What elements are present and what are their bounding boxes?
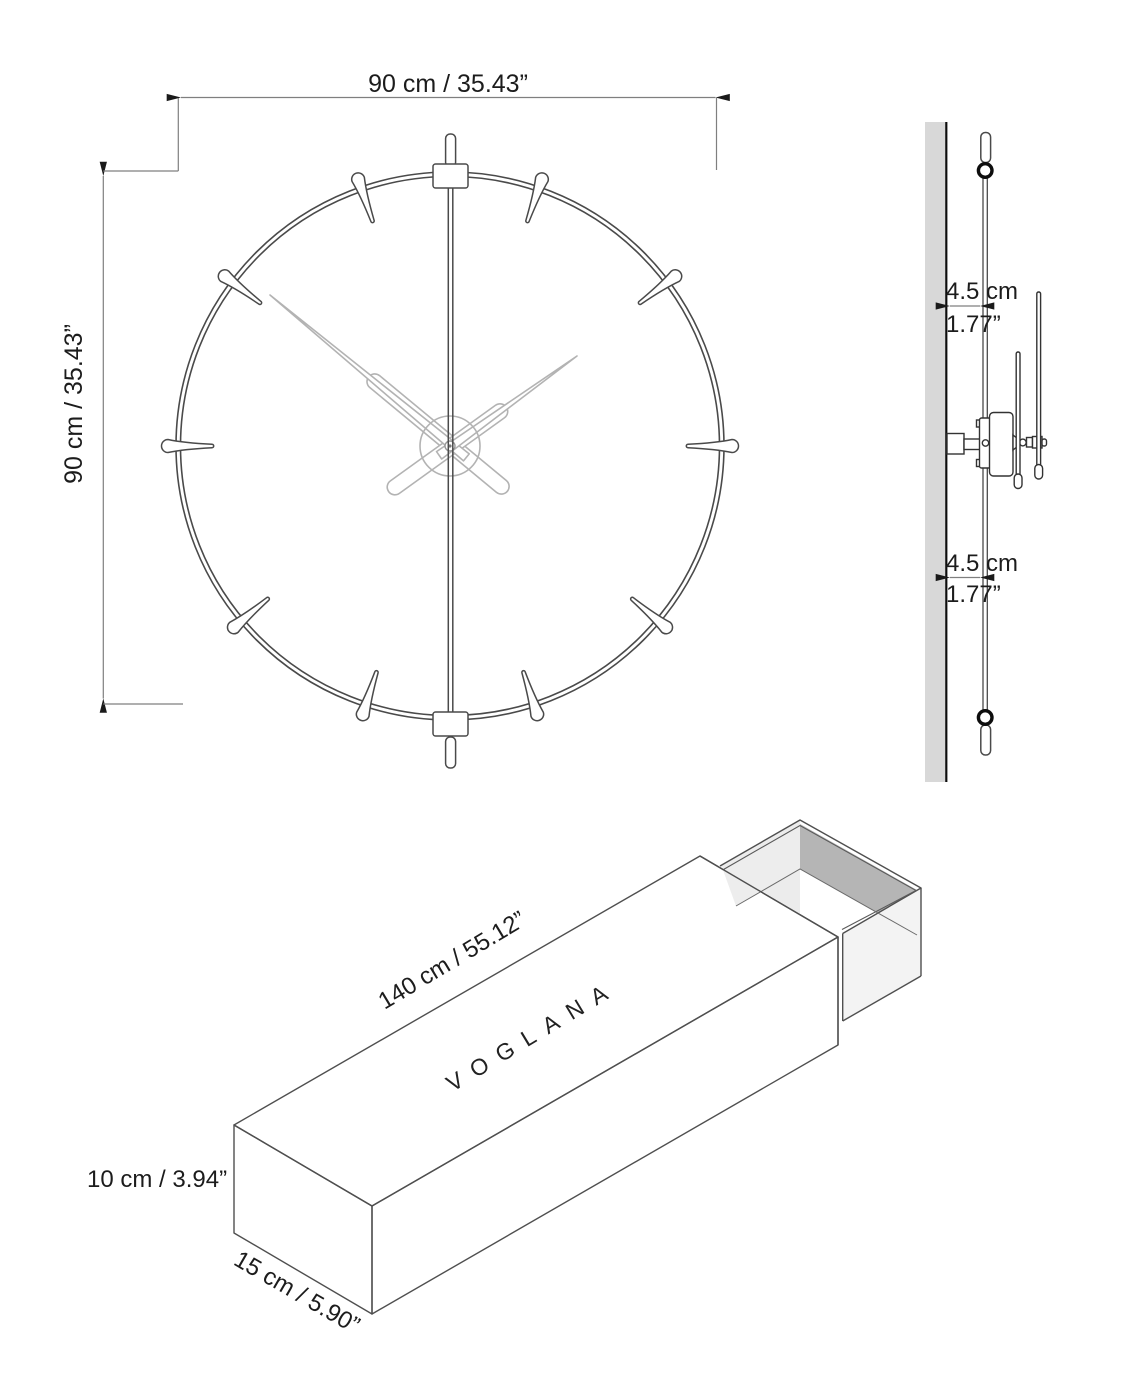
hour-tick: [635, 267, 685, 309]
top-knob: [978, 164, 992, 178]
bracket-arm: [964, 439, 981, 450]
wall: [925, 122, 945, 782]
movement-body: [990, 413, 1014, 477]
rod-top-clamp: [433, 164, 468, 188]
depth-top-inch-label: 1.77”: [946, 311, 1001, 338]
box-depth-label: 15 cm / 5.90”: [229, 1246, 364, 1339]
shaft-end-knob: [1042, 439, 1047, 446]
clock-side-view: 4.5 cm 1.77” 4.5 cm 1.77”: [925, 122, 1047, 782]
hour-hand: [437, 356, 578, 459]
plate-screw: [982, 440, 988, 446]
brand-logo-text: VOGLANA: [442, 974, 623, 1097]
hour-tick: [216, 267, 266, 309]
minute-hand: [270, 295, 469, 461]
rod-bottom-tip: [446, 737, 456, 768]
rod-bottom-clamp: [433, 712, 468, 736]
hour-tick: [350, 171, 379, 225]
minute-hand-edge: [1037, 292, 1041, 468]
packaging-box-view: 140 cm / 55.12” VOGLANA 10 cm / 3.94” 15…: [87, 820, 921, 1339]
rod-top-tip: [446, 134, 456, 167]
depth-dimension-top: 4.5 cm 1.77”: [946, 278, 1018, 338]
depth-dimension-bottom: 4.5 cm 1.77”: [946, 550, 1018, 608]
hour-tick: [225, 593, 273, 637]
bottom-knob: [978, 711, 992, 725]
technical-drawing-page: 90 cm / 35.43” 90 cm / 35.43”: [0, 0, 1140, 1400]
hour-tick: [521, 171, 550, 225]
hour-tick: [355, 669, 383, 723]
hour-tick: [627, 593, 675, 637]
hour-hand-tail-edge: [1014, 474, 1022, 489]
side-rod-bottom-cap: [981, 725, 991, 755]
clock-front-view: 90 cm / 35.43” 90 cm / 35.43”: [60, 70, 739, 768]
box-height-label: 10 cm / 3.94”: [87, 1166, 227, 1193]
hour-hand-edge: [1016, 352, 1020, 478]
hour-tick: [517, 669, 545, 723]
wall-bracket: [947, 434, 964, 455]
box-tray: [720, 820, 921, 1021]
depth-bottom-cm-label: 4.5 cm: [946, 550, 1018, 577]
depth-bottom-inch-label: 1.77”: [946, 581, 1001, 608]
depth-top-cm-label: 4.5 cm: [946, 278, 1018, 305]
height-dimension: 90 cm / 35.43”: [60, 171, 183, 704]
hour-tick: [162, 440, 214, 453]
hour-tick: [686, 440, 738, 453]
side-rod-top-cap: [981, 133, 991, 163]
clock-width-label: 90 cm / 35.43”: [368, 70, 528, 98]
clock-hands: [270, 295, 577, 487]
clock-height-label: 90 cm / 35.43”: [60, 324, 88, 484]
minute-hand-tail-edge: [1035, 465, 1043, 480]
shaft-spacer: [1027, 438, 1033, 448]
